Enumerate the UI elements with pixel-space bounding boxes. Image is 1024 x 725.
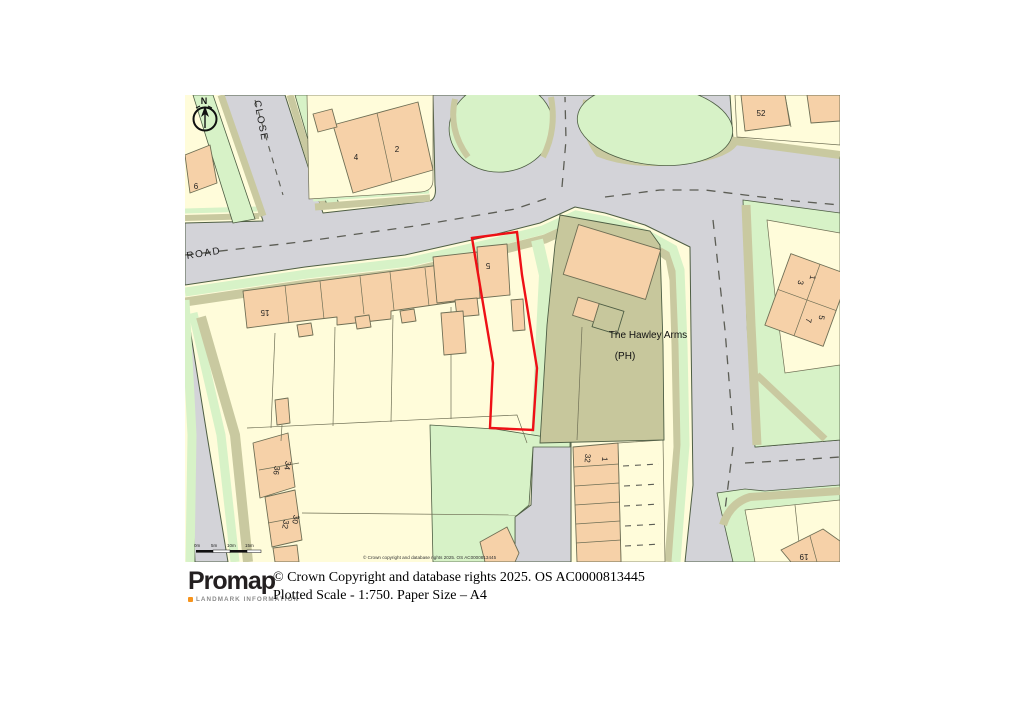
scale-0m: 0m [194, 543, 201, 548]
building-west-lower [441, 311, 466, 355]
footer-legal: © Crown Copyright and database rights 20… [273, 569, 645, 606]
building-5 [477, 244, 510, 298]
terrace-porch-3 [400, 309, 416, 323]
garage-number-32: 32 [583, 453, 593, 463]
site-plan-map: N 0m 5m 10m 15m CLOSE ROAD The Hawley Ar… [185, 95, 840, 562]
scale-10m: 10m [227, 543, 236, 548]
house-number-15: 15 [260, 308, 269, 317]
site-plan-svg: N 0m 5m 10m 15m CLOSE ROAD The Hawley Ar… [185, 95, 840, 562]
house-number-5: 5 [485, 261, 490, 270]
house-number-19: 19 [799, 552, 808, 561]
building-below-32 [273, 545, 299, 562]
building-52 [741, 95, 790, 131]
house-number-6: 6 [194, 182, 199, 191]
scale-5m: 5m [211, 543, 218, 548]
landmark-dot-icon [188, 597, 193, 602]
terrace-porch-2 [355, 315, 371, 329]
promap-brand: Promap LANDMARK INFORMATION [188, 569, 278, 603]
footer-scale-line: Plotted Scale - 1:750. Paper Size – A4 [273, 587, 645, 605]
scale-15m: 15m [245, 543, 254, 548]
terrace-porch-1 [297, 323, 313, 337]
house-number-4: 4 [354, 153, 359, 162]
building-5-outbuilding [511, 299, 525, 331]
promap-plan-page: N 0m 5m 10m 15m CLOSE ROAD The Hawley Ar… [0, 0, 1024, 725]
map-copyright-small: © Crown copyright and database rights 20… [363, 554, 497, 560]
promap-logo: Promap [188, 569, 278, 594]
north-label: N [201, 96, 208, 106]
pub-type-label: (PH) [615, 351, 636, 362]
building-52-row-east [807, 95, 840, 123]
parcel-garage-bays [618, 440, 665, 562]
house-number-2: 2 [395, 145, 400, 154]
outbuilding-34 [275, 398, 290, 425]
footer-copyright: © Crown Copyright and database rights 20… [273, 569, 645, 587]
building-west-of-plot [433, 252, 481, 303]
house-number-52: 52 [757, 109, 766, 118]
pub-name-label: The Hawley Arms [609, 330, 687, 341]
